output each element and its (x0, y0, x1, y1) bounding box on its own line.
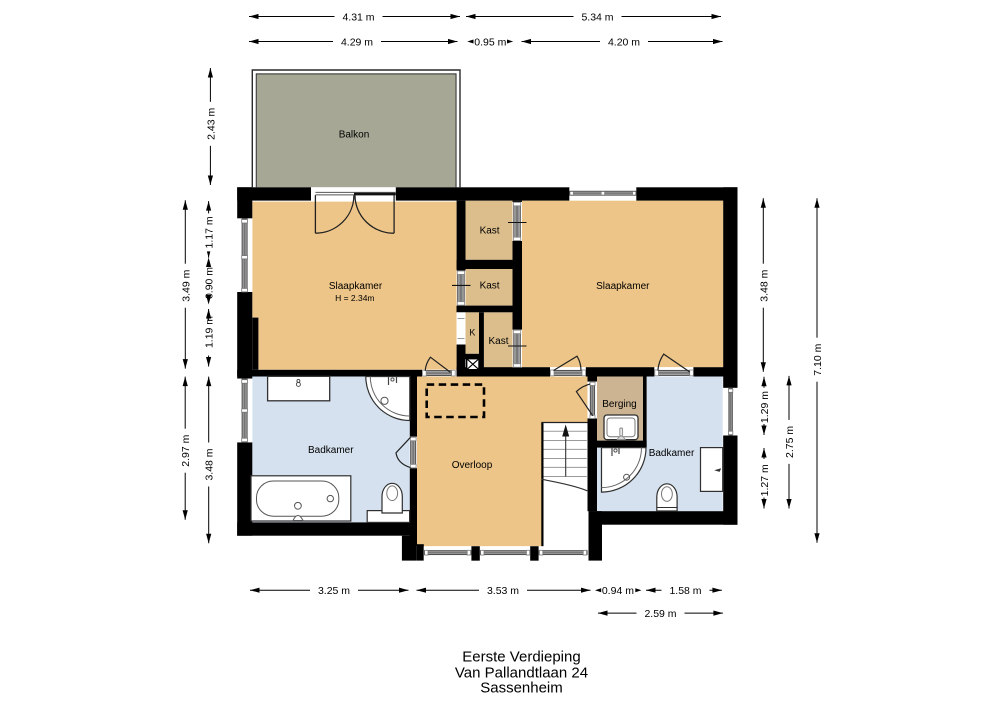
svg-text:1.19 m: 1.19 m (204, 316, 216, 348)
svg-text:1.29 m: 1.29 m (759, 391, 771, 423)
svg-text:Balkon: Balkon (339, 130, 370, 141)
svg-text:Kast: Kast (480, 226, 500, 237)
svg-text:Overloop: Overloop (452, 460, 493, 471)
svg-text:4.29 m: 4.29 m (341, 37, 373, 49)
svg-text:4.31 m: 4.31 m (342, 12, 374, 24)
svg-text:Kast: Kast (488, 336, 508, 347)
svg-text:4.20 m: 4.20 m (608, 37, 640, 49)
svg-text:2.43 m: 2.43 m (205, 108, 217, 140)
svg-text:5.34 m: 5.34 m (581, 12, 613, 24)
svg-text:2.97 m: 2.97 m (180, 434, 192, 466)
svg-text:3.25 m: 3.25 m (318, 585, 350, 597)
svg-text:Badkamer: Badkamer (308, 445, 354, 456)
svg-text:Slaapkamer: Slaapkamer (329, 281, 383, 292)
svg-text:Eerste Verdieping: Eerste Verdieping (462, 648, 580, 665)
svg-text:3.48 m: 3.48 m (758, 269, 770, 301)
svg-text:0.90 m: 0.90 m (204, 267, 216, 299)
svg-text:Slaapkamer: Slaapkamer (596, 281, 650, 292)
svg-text:2.75 m: 2.75 m (784, 426, 796, 458)
svg-text:3.49 m: 3.49 m (180, 269, 192, 301)
svg-text:7.10 m: 7.10 m (812, 343, 824, 375)
svg-text:Badkamer: Badkamer (649, 448, 695, 459)
svg-text:K: K (469, 327, 475, 337)
svg-text:Kast: Kast (480, 281, 500, 292)
svg-text:Sassenheim: Sassenheim (480, 680, 563, 697)
svg-text:Berging: Berging (602, 399, 636, 410)
svg-text:3.48 m: 3.48 m (204, 448, 216, 480)
svg-text:H = 2.34m: H = 2.34m (335, 293, 374, 303)
svg-text:1.17 m: 1.17 m (204, 216, 216, 248)
svg-text:3.53 m: 3.53 m (487, 585, 519, 597)
svg-text:0.94 m: 0.94 m (602, 585, 634, 597)
svg-text:1.58 m: 1.58 m (669, 585, 701, 597)
svg-text:2.59 m: 2.59 m (644, 608, 676, 620)
svg-text:1.27 m: 1.27 m (759, 464, 771, 496)
svg-text:0.95 m: 0.95 m (474, 37, 506, 49)
